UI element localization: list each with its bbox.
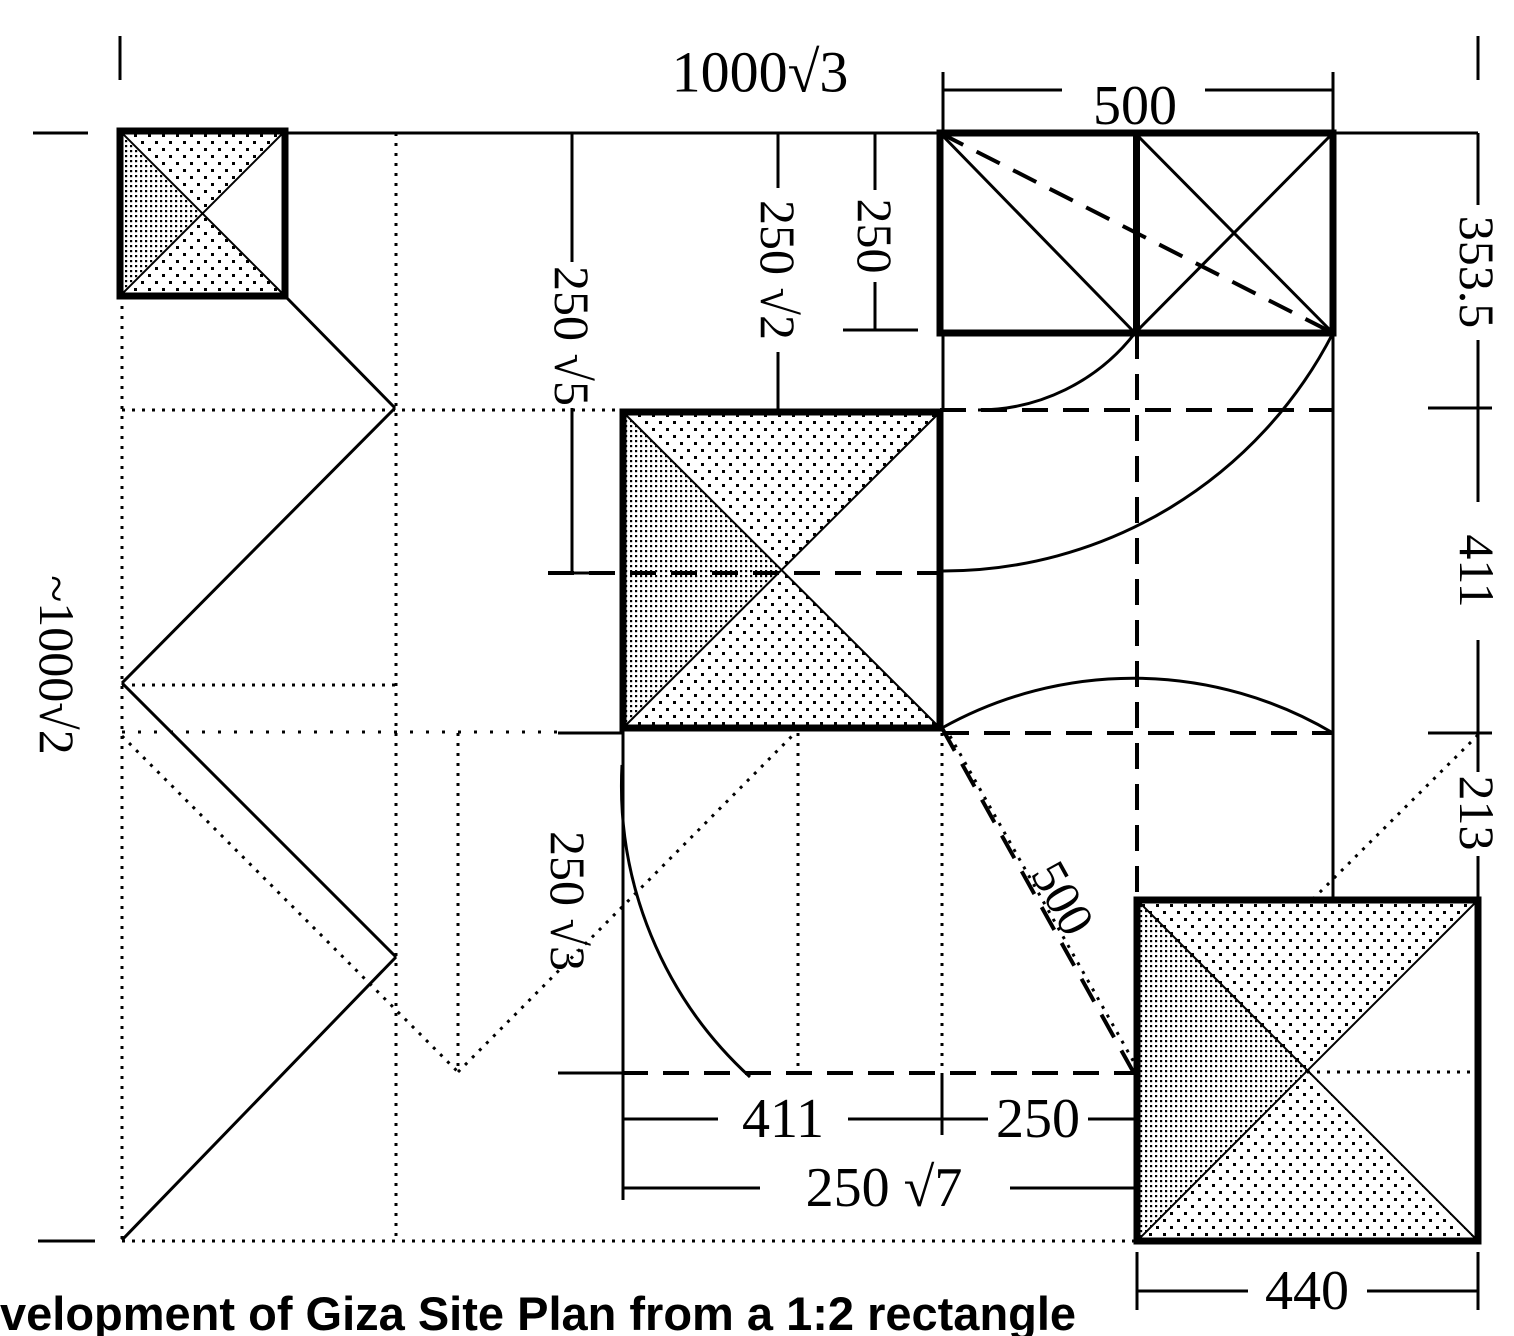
dimension-bottom-250: 250 [996, 1088, 1080, 1150]
dimension-top-500: 500 [1093, 75, 1177, 137]
dimension-diagonal-500: 500 [1020, 852, 1105, 945]
dimension-250-sqrt2: 250 √2 [750, 200, 806, 340]
construction-line-dotted [458, 733, 795, 1072]
dimension-bottom-440: 440 [1265, 1260, 1349, 1322]
construction-line-solid [122, 957, 396, 1240]
dimension-250-sqrt5: 250 √5 [544, 266, 600, 406]
construction-arc [621, 765, 750, 1077]
dimension-top-width: 1000√3 [672, 40, 849, 105]
construction-arc [940, 333, 1333, 571]
dimension-left-height: ~1000√2 [29, 575, 85, 755]
construction-line-solid [122, 408, 395, 683]
diagram-canvas: 1000√3 500 250 √5 250 √2 250 353.5 411 2… [0, 0, 1514, 1336]
figure-caption: velopment of Giza Site Plan from a 1:2 r… [0, 1286, 1076, 1336]
dimension-right-353-5: 353.5 [1449, 216, 1505, 329]
construction-line-solid [122, 683, 396, 957]
dimension-bottom-250-sqrt7: 250 √7 [806, 1157, 963, 1219]
giza-construction-diagram: 1000√3 500 250 √5 250 √2 250 353.5 411 2… [0, 0, 1514, 1336]
construction-line-dotted [122, 736, 458, 1072]
dimension-right-213: 213 [1449, 776, 1505, 851]
dimension-right-411: 411 [1449, 534, 1505, 607]
dimension-250: 250 [847, 199, 903, 274]
dimension-bottom-411: 411 [742, 1088, 824, 1150]
construction-line-solid [285, 296, 395, 408]
construction-arc [978, 333, 1135, 410]
dimension-250-sqrt3: 250 √3 [540, 831, 596, 971]
